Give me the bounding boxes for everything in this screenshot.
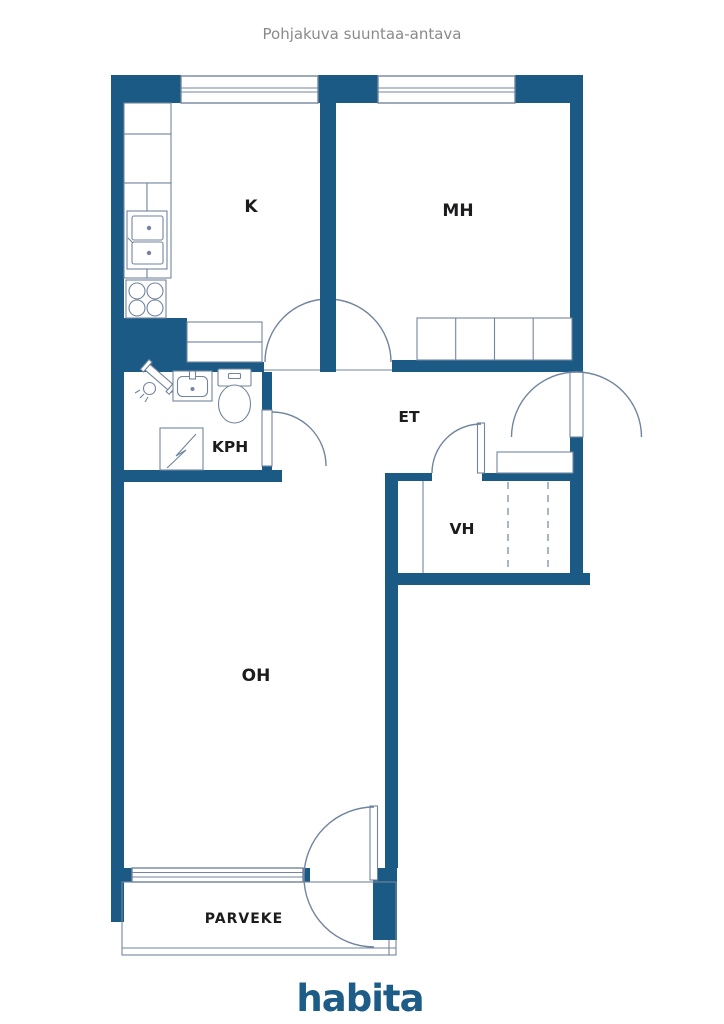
room-label-closet: VH	[450, 520, 475, 538]
floor-plan-page: Pohjakuva suuntaa-antava	[0, 0, 724, 1024]
kitchen-counter	[187, 322, 262, 342]
wall-living-right	[385, 481, 398, 868]
wall-closet-top-right	[482, 473, 583, 481]
room-label-bathroom: KPH	[212, 438, 248, 456]
kitchen-counter	[187, 342, 262, 362]
wall-divider-k-mh	[320, 103, 336, 372]
washing-machine-icon	[160, 428, 203, 470]
washbasin-icon	[173, 371, 212, 401]
window-living	[132, 868, 303, 882]
wardrobe	[417, 318, 572, 360]
wall-bedroom-bottom	[392, 360, 583, 372]
balcony-door-leaf	[370, 806, 378, 880]
room-label-kitchen: K	[244, 197, 258, 217]
bathroom-door-leaf	[262, 410, 272, 466]
closet-details	[423, 452, 573, 573]
floor-plan: Pohjakuva suuntaa-antava	[0, 0, 724, 1024]
wall-top-middle	[318, 75, 378, 103]
wall-top-right	[515, 75, 583, 103]
closet-door-leaf	[478, 423, 485, 473]
wall-bathroom-bottom	[111, 470, 282, 482]
wall-closet-top-left	[385, 473, 432, 481]
door-arc-closet	[432, 424, 481, 473]
door-arc-bathroom	[272, 412, 326, 466]
window-bedroom	[378, 76, 515, 103]
wall-bathroom-right-upper	[262, 372, 272, 410]
hall-cabinet	[497, 452, 573, 473]
doors	[262, 372, 642, 947]
kitchen-sink-icon	[127, 211, 167, 269]
window-kitchen	[181, 76, 318, 103]
room-label-living: OH	[242, 666, 271, 686]
wall-left	[111, 103, 124, 882]
stove-icon	[126, 280, 166, 318]
room-label-balcony: PARVEKE	[205, 911, 283, 927]
door-arc-balcony	[304, 807, 374, 947]
kitchen-counter	[124, 103, 171, 134]
room-label-hall: ET	[398, 408, 420, 426]
wall-living-bottom-left	[111, 868, 132, 882]
plan-title: Pohjakuva suuntaa-antava	[263, 25, 462, 43]
entrance-door-leaf	[570, 372, 583, 437]
habita-logo: habita	[296, 977, 423, 1020]
toilet-icon	[218, 369, 251, 423]
wall-top-left	[111, 75, 181, 103]
room-label-bedroom: MH	[442, 201, 473, 221]
kitchen-counter	[124, 134, 171, 183]
wall-closet-bottom	[385, 573, 590, 585]
